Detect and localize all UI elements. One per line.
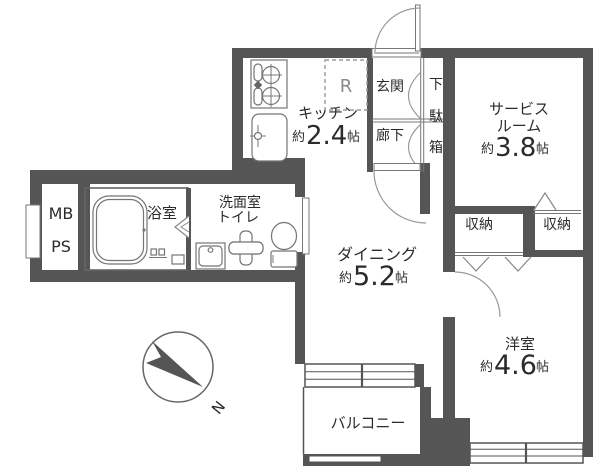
storage-left-door-mark <box>505 257 531 271</box>
room-kitchen: キッチン 約 2.4 帖 <box>292 104 360 151</box>
storage-right-door-mark <box>534 193 556 210</box>
service-size-unit: 帖 <box>536 142 549 157</box>
compass-north-label: N <box>207 397 228 417</box>
service-label-1: サービス <box>489 100 549 118</box>
western-size-num: 4.6 <box>494 350 537 381</box>
meter-box-door <box>26 205 40 258</box>
storage-left-label: 収納 <box>465 217 493 233</box>
washroom-sliding-door <box>303 198 310 254</box>
service-size-approx: 約 <box>481 142 494 157</box>
svg-text:箱: 箱 <box>429 140 443 156</box>
hallway-label: 廊下 <box>376 127 404 144</box>
balcony-panel <box>309 456 381 462</box>
bath-label: 浴室 <box>147 204 177 222</box>
room-western: 洋室 約 4.6 帖 <box>480 335 549 381</box>
western-room-door <box>455 272 500 317</box>
washroom-label-1: 洗面室 <box>219 194 261 211</box>
washroom-label-2: トイレ <box>217 210 259 226</box>
compass: N <box>143 332 228 417</box>
western-size-unit: 帖 <box>536 360 549 375</box>
service-size-num: 3.8 <box>495 133 536 163</box>
toilet-icon <box>272 223 297 250</box>
storage-left-door-mark <box>463 257 489 271</box>
svg-text:駄: 駄 <box>429 109 443 125</box>
svg-text:下: 下 <box>429 77 443 93</box>
meter-box-label: MB <box>49 204 74 223</box>
refrigerator-label: R <box>340 76 353 97</box>
entrance-label: 玄関 <box>376 78 404 95</box>
storage-right-label: 収納 <box>543 217 571 233</box>
compass-needle <box>146 341 203 387</box>
dining-size-approx: 約 <box>339 271 352 286</box>
entrance-door <box>372 5 421 57</box>
dining-balcony-window <box>305 364 415 387</box>
shoe-cabinet-door-arc <box>409 72 422 119</box>
pipe-space-label: PS <box>51 237 71 256</box>
kitchen-size-unit: 帖 <box>347 130 360 145</box>
room-dining: ダイニング 約 5.2 帖 <box>337 245 417 292</box>
dining-size-unit: 帖 <box>395 271 408 286</box>
kitchen-counter <box>250 60 287 161</box>
floor-plan: R <box>0 0 609 471</box>
dining-size-num: 5.2 <box>353 261 396 292</box>
western-size-approx: 約 <box>480 360 493 375</box>
balcony-label: バルコニー <box>331 414 406 432</box>
kitchen-label: キッチン <box>298 104 358 122</box>
bath-area <box>85 188 191 270</box>
entrance-door-arc <box>375 8 420 52</box>
shoe-cabinet-label: 下 駄 箱 <box>429 77 443 156</box>
western-room-window <box>470 443 583 463</box>
bath-drain-icon <box>172 255 184 264</box>
hall-dining-door <box>374 164 426 224</box>
floorplan-svg: R <box>0 0 609 471</box>
meter-pipe-space <box>26 205 40 258</box>
bath-folding-door <box>175 216 189 238</box>
refrigerator-space: R <box>325 60 367 110</box>
kitchen-size-num: 2.4 <box>306 121 347 151</box>
room-service: サービス ルーム 約 3.8 帖 <box>481 100 549 163</box>
kitchen-size-approx: 約 <box>292 130 305 145</box>
